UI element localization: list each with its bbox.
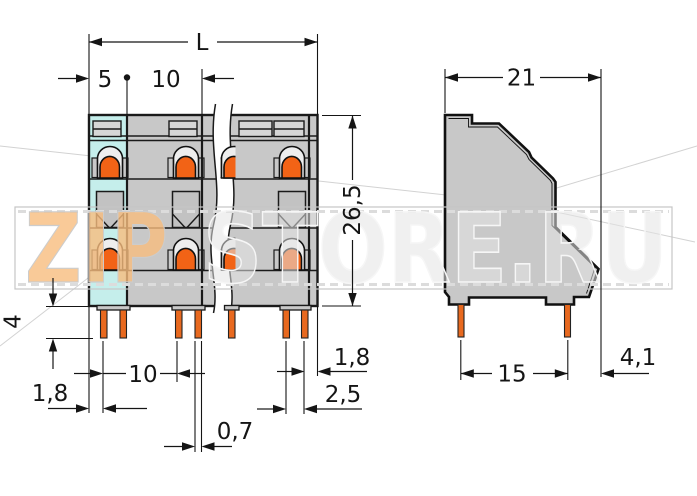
dim-back-offset: 4,1	[620, 345, 657, 371]
dim-right-margin: 1,8	[334, 345, 371, 371]
watermark-zip: ZIP	[25, 193, 168, 305]
dim-pitch: 10	[151, 67, 180, 93]
dim-pin-spacing: 15	[497, 362, 526, 388]
dim-overall-length: L	[196, 30, 209, 56]
dim-left-margin: 1,8	[32, 381, 69, 407]
actuator-button	[100, 156, 120, 178]
solder-pins	[101, 310, 309, 338]
dim-height: 26,5	[340, 184, 366, 235]
dim-pin-width: 0,7	[217, 419, 254, 445]
dim-pin-length: 4	[1, 314, 27, 329]
dim-depth: 21	[507, 66, 536, 92]
watermark-store: STORE.RU	[203, 193, 668, 305]
dim-end-offset: 5	[98, 67, 113, 93]
dim-pin-gap: 2,5	[325, 382, 362, 408]
technical-drawing-canvas: ZIP STORE.RU	[0, 0, 697, 496]
actuator-button	[176, 248, 196, 270]
dim-pin-row-pitch: 10	[128, 362, 157, 388]
side-pins	[458, 305, 571, 338]
actuator-button	[282, 156, 302, 178]
actuator-button	[176, 156, 196, 178]
drawing-svg: ZIP STORE.RU	[0, 0, 697, 496]
